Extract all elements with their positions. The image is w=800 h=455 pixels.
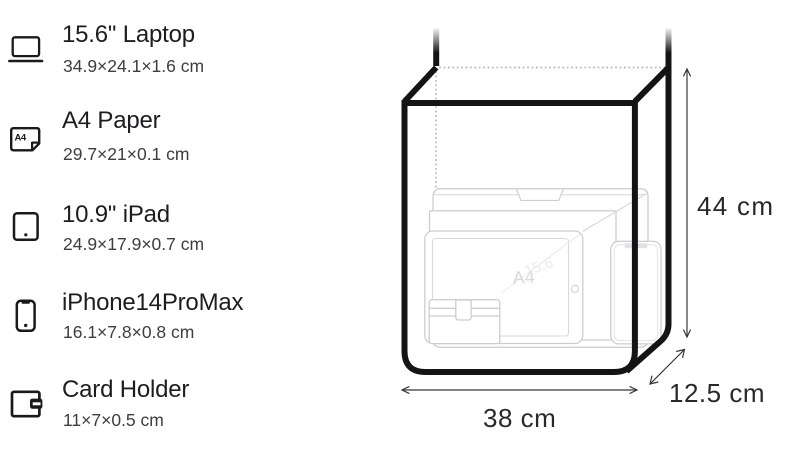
svg-text:A4: A4: [15, 133, 27, 144]
